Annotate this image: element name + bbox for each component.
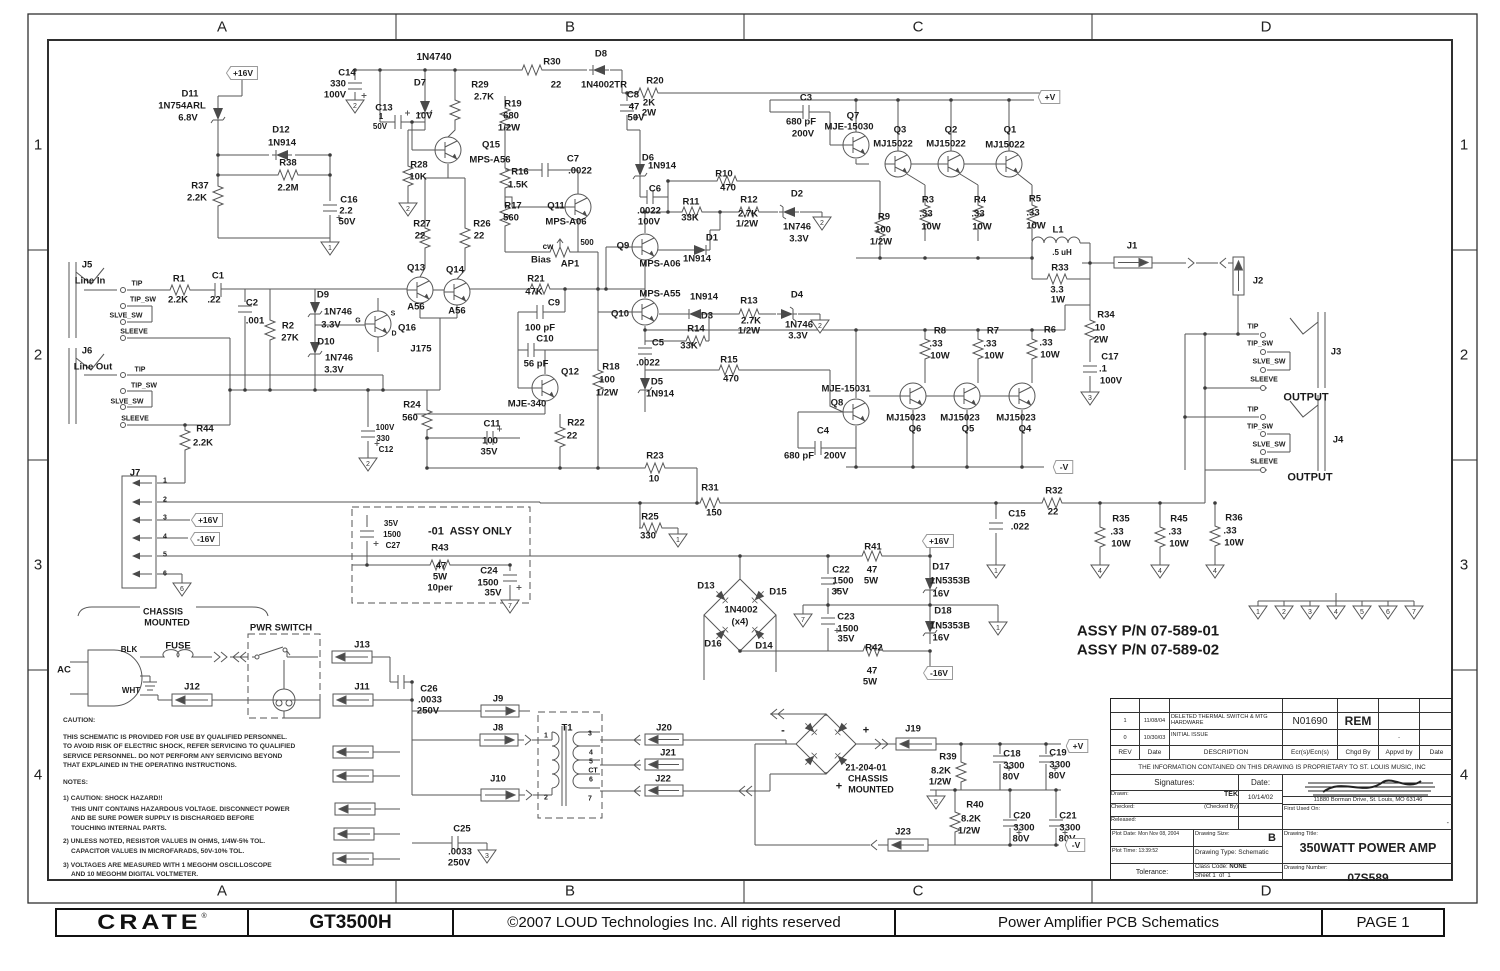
component-label: 250V (448, 858, 470, 868)
component-label: J10 (490, 774, 506, 784)
component-label: 1N746 (785, 320, 813, 330)
component-label: 1N914 (646, 389, 674, 399)
component-label: MJE-15030 (824, 122, 873, 132)
component-label: 10W (1040, 350, 1060, 360)
section-title: Power Amplifier PCB Schematics (896, 910, 1323, 935)
component-label: 5W (864, 576, 878, 586)
component-label: 2 (163, 497, 167, 504)
component-label: 2.2 (339, 206, 352, 216)
component-label: R43 (431, 543, 448, 553)
component-label: Q8 (831, 398, 844, 408)
component-label: 1N746 (783, 222, 811, 232)
component-label: J21 (660, 748, 676, 758)
note-line: AND 10 MEGOHM DIGITAL VOLTMETER. (63, 870, 403, 880)
component-label: CHASSIS (848, 775, 888, 784)
component-label: C2 (246, 298, 258, 308)
component-label: MPS-A55 (639, 289, 680, 299)
component-label: TIP_SW (1247, 424, 1273, 431)
zone-number: 4 (1460, 767, 1468, 784)
svg-text:1: 1 (328, 245, 332, 252)
component-label: D3 (701, 311, 713, 321)
component-label: C24 (480, 566, 497, 576)
ground-symbol: 7 (794, 614, 812, 627)
ground-symbol: 4 (1206, 565, 1224, 578)
component-label: C25 (453, 824, 470, 834)
component-label: R36 (1225, 513, 1242, 523)
component-label: R4 (974, 195, 986, 205)
note-line: TOUCHING INTERNAL PARTS. (63, 824, 403, 834)
component-label: 22 (415, 231, 426, 241)
ground-symbol: 4 (1327, 606, 1345, 619)
component-label: C12 (379, 446, 394, 454)
component-label: Line In (75, 276, 106, 286)
component-label: A56 (448, 306, 465, 316)
component-label: R23 (646, 451, 663, 461)
component-label: R27 (413, 219, 430, 229)
component-label: .1 (1099, 364, 1107, 374)
component-label: OUTPUT (1287, 473, 1332, 484)
net-flag: +V (1038, 90, 1061, 104)
component-label: .5 uH (1052, 249, 1072, 257)
svg-text:4: 4 (1213, 568, 1217, 575)
component-label: 27K (281, 333, 298, 343)
component-label: 10W (1026, 221, 1046, 231)
rev1-chgd: REM (1338, 713, 1379, 730)
component-label: 1N754ARL (158, 101, 206, 111)
component-label: MJE-15031 (821, 384, 870, 394)
zone-letter: C (913, 19, 924, 36)
component-label: 680 pF (784, 451, 814, 461)
component-label: 22 (474, 231, 485, 241)
connector-symbol (480, 734, 518, 746)
rev1-appvd (1379, 713, 1420, 730)
component-label: C21 (1059, 811, 1076, 821)
component-label: J12 (184, 682, 200, 692)
svg-text:4: 4 (1098, 568, 1102, 575)
zone-number: 2 (1460, 347, 1468, 364)
svg-text:4: 4 (1334, 609, 1338, 616)
ground-symbol: 2 (399, 203, 417, 216)
component-label: SLEEVE (1250, 377, 1278, 384)
component-label: TIP (135, 367, 146, 374)
component-label: D15 (769, 587, 786, 597)
component-label: SLVE_SW (1253, 442, 1286, 449)
component-label: Q14 (446, 265, 464, 275)
caution-line: TO AVOID RISK OF ELECTRIC SHOCK, REFER S… (63, 742, 403, 752)
footer-bar: CRATE ® GT3500H ©2007 LOUD Technologies … (55, 908, 1445, 937)
component-label: R37 (191, 181, 208, 191)
component-label: 1N746 (324, 307, 352, 317)
component-label: D4 (791, 290, 803, 300)
zone-number: 1 (1460, 137, 1468, 154)
component-label: C16 (340, 195, 357, 205)
component-label: 3 (163, 515, 167, 522)
note-line: 3) VOLTAGES ARE MEASURED WITH 1 MEGOHM O… (63, 861, 403, 871)
component-label: .33 (919, 209, 932, 219)
rev0-appvd: - (1379, 730, 1420, 746)
component-label: .33 (1039, 338, 1052, 348)
component-label: .0022 (568, 166, 592, 176)
svg-text:1: 1 (996, 625, 1000, 632)
component-label: 35V (485, 588, 502, 598)
component-label: 1 (379, 113, 383, 121)
svg-text:3: 3 (1308, 609, 1312, 616)
component-label: D13 (697, 581, 714, 591)
component-label: 680 (503, 111, 519, 121)
component-label: MOUNTED (144, 619, 190, 628)
connector-symbol (896, 738, 936, 750)
component-label: 1/2W (870, 237, 892, 247)
copyright-text: ©2007 LOUD Technologies Inc. All rights … (454, 910, 896, 935)
component-label: R44 (196, 424, 213, 434)
component-label: 1 (163, 478, 167, 485)
caution-line: THAT EXPLAINED IN THE OPERATING INSTRUCT… (63, 761, 403, 771)
component-label: C7 (567, 154, 579, 164)
component-label: C10 (536, 334, 553, 344)
component-label: R21 (527, 274, 544, 284)
component-label: 1N914 (683, 254, 711, 264)
component-label: R1 (173, 274, 185, 284)
ground-symbol: 1 (987, 565, 1005, 578)
component-label: 8.2K (931, 766, 951, 776)
component-label: 500 (580, 239, 593, 247)
component-label: Q6 (909, 424, 922, 434)
component-label: CHASSIS (143, 608, 183, 617)
zone-letter: D (1261, 19, 1272, 36)
component-label: D18 (934, 606, 951, 616)
component-label: (x4) (732, 617, 749, 627)
ground-symbol: 6 (173, 583, 191, 596)
component-label: 560 (503, 213, 519, 223)
schematic-sheet: { "footer":{"brand":"CRATE","reg":"®","m… (0, 0, 1500, 971)
component-label: J19 (905, 724, 921, 734)
component-label: 6.8V (178, 113, 198, 123)
component-label: FUSE (165, 641, 190, 651)
caution-notes-block: CAUTION: THIS SCHEMATIC IS PROVIDED FOR … (63, 716, 403, 880)
component-label: D11 (182, 89, 199, 99)
ground-symbol: 2 (359, 458, 377, 471)
svg-text:2: 2 (818, 323, 822, 330)
component-label: 470 (720, 183, 736, 193)
component-label: .0033 (448, 847, 472, 857)
component-label: 5W (863, 677, 877, 687)
component-label: R11 (683, 197, 700, 207)
component-label: D8 (595, 49, 607, 59)
component-label: .33 (1223, 526, 1236, 536)
component-label: C22 (832, 565, 849, 575)
component-label: D2 (791, 189, 803, 199)
component-label: 80V (1049, 771, 1066, 781)
page-number: PAGE 1 (1323, 910, 1443, 935)
component-label: Q10 (611, 309, 629, 319)
component-label: SLEEVE (120, 329, 148, 336)
component-label: J7 (130, 468, 141, 478)
ground-symbol: 2 (811, 320, 829, 333)
component-label: .33 (971, 209, 984, 219)
component-label: 56 pF (524, 359, 549, 369)
component-label: SLVE_SW (1253, 359, 1286, 366)
component-label: R22 (567, 418, 584, 428)
component-label: SLVE_SW (111, 399, 144, 406)
component-label: 2.2K (193, 438, 213, 448)
component-label: TIP (1248, 324, 1259, 331)
ground-symbol: 4 (1091, 565, 1109, 578)
component-label: 35V (838, 634, 855, 644)
component-label: 1N4740 (416, 53, 451, 63)
component-label: AP1 (561, 259, 579, 269)
component-label: 1/2W (596, 388, 618, 398)
ground-symbol: 5 (1353, 606, 1371, 619)
component-label: R30 (543, 57, 560, 67)
rev0-desc: INITIAL ISSUE (1170, 730, 1283, 746)
component-label: J23 (895, 827, 911, 837)
component-label: 1.5K (508, 180, 528, 190)
component-label: Q4 (1019, 424, 1032, 434)
component-label: R16 (511, 167, 528, 177)
component-label: 2 (544, 795, 548, 802)
component-label: R8 (934, 326, 946, 336)
component-label: BLK (121, 646, 137, 654)
component-label: MPS-A56 (469, 155, 510, 165)
rev1-desc: DELETED THERMAL SWITCH & MTG HARDWARE (1170, 713, 1283, 730)
note-line: CAPACITOR VALUES IN MICROFARADS, 50V-10%… (63, 847, 403, 857)
component-label: 47 (436, 561, 447, 571)
svg-text:5: 5 (934, 799, 938, 806)
net-flag: -V (1053, 460, 1074, 474)
component-label: R42 (865, 643, 882, 653)
component-label: .33 (983, 339, 996, 349)
component-label: 1/2W (958, 826, 980, 836)
component-label: C15 (1008, 509, 1025, 519)
component-label: 1N746 (325, 353, 353, 363)
rev1-rev: 1 (1111, 713, 1140, 730)
connector-symbol (1233, 257, 1244, 295)
component-label: 35V (832, 587, 849, 597)
component-label: R2 (282, 321, 294, 331)
component-label: cw (543, 243, 554, 251)
component-label: MJE-340 (508, 399, 547, 409)
component-label: Q5 (962, 424, 975, 434)
component-label: 1N914 (690, 292, 718, 302)
component-label: J4 (1333, 435, 1344, 445)
component-label: 680 pF (786, 117, 816, 127)
svg-text:1: 1 (994, 568, 998, 575)
component-label: AC (57, 665, 71, 675)
connector-symbol (172, 694, 212, 706)
note-line: 1) CAUTION: SHOCK HAZARD!! (63, 794, 403, 804)
component-label: MJ15023 (940, 413, 980, 423)
component-label: D17 (932, 562, 949, 572)
component-label: 150 (706, 508, 722, 518)
connector-symbol (481, 789, 519, 801)
component-label: Q12 (561, 367, 579, 377)
component-label: 100 (482, 436, 498, 446)
component-label: 100V (324, 90, 346, 100)
component-label: 5W (433, 572, 447, 582)
component-label: 47 (867, 666, 878, 676)
component-label: D10 (317, 337, 334, 347)
component-label: R32 (1045, 486, 1062, 496)
svg-text:6: 6 (1386, 609, 1390, 616)
ground-symbol: 3 (1301, 606, 1319, 619)
component-label: OUTPUT (1283, 393, 1328, 404)
component-label: Q13 (407, 263, 425, 273)
component-label: 10 (1095, 323, 1106, 333)
component-label: S (391, 311, 396, 318)
title-block: 1 11/08/04 DELETED THERMAL SWITCH & MTG … (1110, 698, 1452, 880)
component-label: ASSY P/N 07-589-01 (1077, 624, 1219, 639)
svg-text:1: 1 (1256, 609, 1260, 616)
rev1-date: 11/08/04 (1140, 713, 1170, 730)
component-label: C19 (1049, 748, 1066, 758)
svg-text:3: 3 (1088, 395, 1092, 402)
component-label: R26 (473, 219, 490, 229)
caution-line: SERVICE PERSONNEL. DO NOT PERFORM ANY SE… (63, 752, 403, 762)
component-label: .0022 (636, 358, 660, 368)
component-label: C26 (420, 684, 437, 694)
component-label: J22 (655, 774, 671, 784)
net-flag: +V (1066, 739, 1089, 753)
component-label: D12 (272, 125, 289, 135)
component-label: 80V (1013, 834, 1030, 844)
component-label: J8 (493, 723, 504, 733)
component-label: 1500 (832, 576, 853, 586)
component-label: 330 (330, 79, 346, 89)
svg-text:1: 1 (676, 537, 680, 544)
svg-text:7: 7 (508, 603, 512, 610)
component-label: .33 (1168, 527, 1181, 537)
component-label: J20 (656, 723, 672, 733)
component-label: R39 (939, 752, 956, 762)
component-label: MPS-A06 (639, 259, 680, 269)
component-label: 33K (681, 213, 698, 223)
ground-symbol: 7 (501, 600, 519, 613)
component-label: J11 (354, 682, 369, 692)
ground-symbol: 1 (669, 534, 687, 547)
component-label: 33K (680, 341, 697, 351)
component-label: Q7 (847, 111, 860, 121)
component-label: .001 (246, 316, 265, 326)
ground-symbol: 2 (1275, 606, 1293, 619)
component-label: 100 (875, 225, 891, 235)
zone-number: 4 (34, 767, 42, 784)
component-label: 1 (544, 733, 548, 740)
component-label: 1N914 (268, 138, 296, 148)
component-label: 100V (376, 424, 395, 432)
caution-line: THIS SCHEMATIC IS PROVIDED FOR USE BY QU… (63, 733, 403, 743)
component-label: Line Out (74, 362, 113, 372)
component-label: R31 (701, 483, 718, 493)
component-label: R19 (504, 99, 521, 109)
component-label: 2.7K (474, 92, 494, 102)
component-label: MJ15022 (985, 140, 1025, 150)
component-label: MJ15022 (926, 139, 966, 149)
component-label: 330 (376, 435, 389, 443)
component-label: 10W (1169, 539, 1189, 549)
component-label: 50V (628, 113, 645, 123)
component-label: C20 (1013, 811, 1030, 821)
component-label: R13 (740, 296, 757, 306)
connector-symbol (645, 785, 683, 796)
component-label: D (391, 331, 396, 338)
component-label: R29 (471, 80, 488, 90)
ground-symbol: 4 (1151, 565, 1169, 578)
component-label: - (781, 726, 785, 737)
component-label: 1500 (383, 531, 401, 539)
component-label: Q2 (945, 125, 958, 135)
component-label: 4 (589, 750, 593, 757)
zone-number: 1 (34, 137, 42, 154)
ground-symbol: 1 (321, 242, 339, 255)
component-label: .022 (1011, 522, 1030, 532)
component-label: C9 (548, 298, 560, 308)
component-label: R7 (987, 326, 999, 336)
component-label: 100 pF (525, 323, 555, 333)
caution-title: CAUTION: (63, 716, 403, 726)
component-label: J175 (410, 344, 431, 354)
zone-number: 3 (1460, 557, 1468, 574)
signatures-label: Signatures: (1111, 775, 1239, 791)
component-label: C18 (1003, 749, 1020, 759)
component-label: 5 (163, 552, 167, 559)
component-label: 100V (1100, 376, 1122, 386)
component-label: MPS-A06 (545, 217, 586, 227)
component-label: 3300 (1059, 823, 1080, 833)
ground-symbol: 2 (346, 100, 364, 113)
component-label: TIP_SW (130, 297, 156, 304)
component-label: 10per (427, 583, 452, 593)
component-label: Bias (531, 255, 551, 265)
proprietary-note: THE INFORMATION CONTAINED ON THIS DRAWIN… (1111, 760, 1453, 775)
component-label: R15 (720, 355, 737, 365)
zone-number: 2 (34, 347, 42, 364)
component-label: 47 (867, 565, 878, 575)
component-label: 3.3V (789, 234, 809, 244)
component-label: R45 (1170, 514, 1187, 524)
zone-letter: B (565, 19, 575, 36)
component-label: 47K (525, 287, 542, 297)
model-label: GT3500H (249, 910, 454, 935)
component-label: .0022 (637, 206, 661, 216)
svg-text:7: 7 (801, 617, 805, 624)
component-label: C17 (1101, 352, 1118, 362)
component-label: 470 (723, 374, 739, 384)
component-label: TIP_SW (131, 383, 157, 390)
component-label: C3 (800, 93, 812, 103)
component-label: R6 (1044, 325, 1056, 335)
component-label: ASSY P/N 07-589-02 (1077, 643, 1219, 658)
component-label: R35 (1112, 514, 1129, 524)
component-label: 1N914 (648, 161, 676, 171)
component-label: 200V (824, 451, 846, 461)
svg-text:6: 6 (180, 586, 184, 593)
component-label: .33 (929, 339, 942, 349)
component-label: 10W (984, 351, 1004, 361)
component-label: -01 ASSY ONLY (428, 527, 512, 538)
component-label: 5 (589, 759, 593, 766)
component-label: 1/2W (929, 777, 951, 787)
component-label: C14 (338, 68, 355, 78)
component-label: MOUNTED (848, 786, 894, 795)
component-label: 1/2W (498, 123, 520, 133)
ground-symbol: 3 (478, 850, 496, 863)
zone-letter: A (217, 19, 227, 36)
component-label: 35V (384, 520, 398, 528)
component-label: Q15 (482, 140, 500, 150)
rev0-date: 10/30/03 (1140, 730, 1170, 746)
component-label: 16V (933, 633, 950, 643)
component-label: L1 (1052, 225, 1063, 235)
